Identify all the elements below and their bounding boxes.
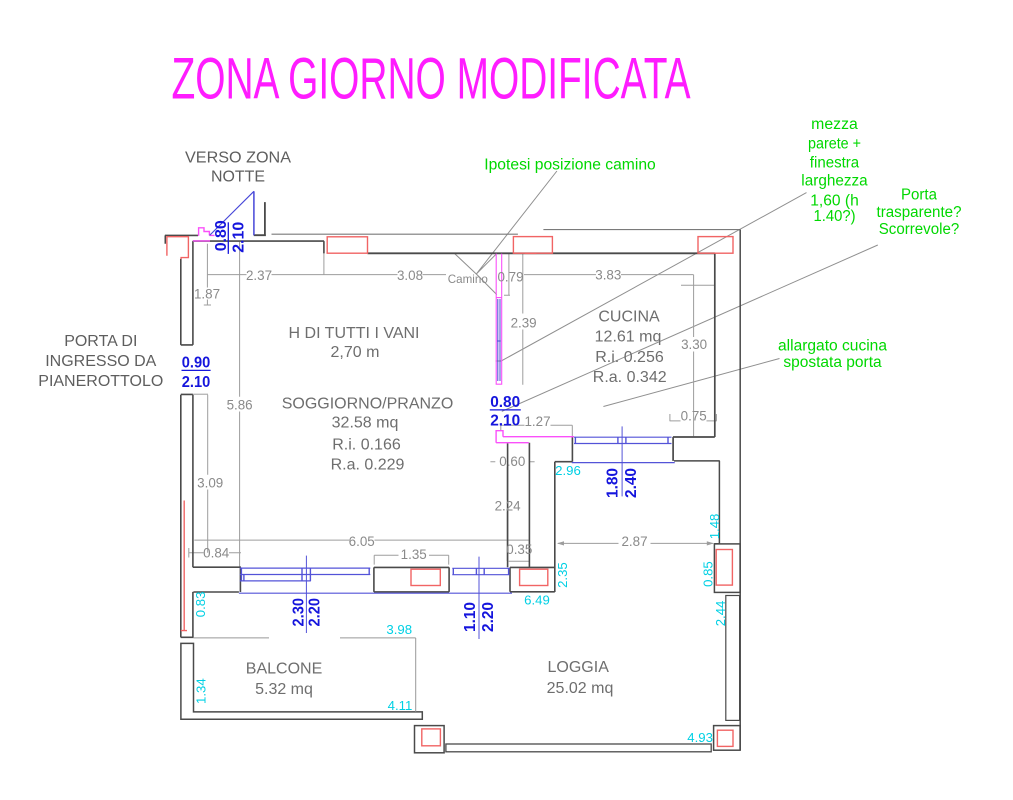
svg-text:2.96: 2.96 [555, 463, 581, 478]
svg-text:2.10: 2.10 [490, 413, 520, 430]
svg-text:12.61 mq: 12.61 mq [595, 329, 662, 346]
svg-text:trasparente?: trasparente? [877, 204, 962, 221]
svg-text:3.08: 3.08 [397, 268, 423, 283]
svg-text:allargato cucina: allargato cucina [778, 338, 887, 355]
svg-text:0.75: 0.75 [681, 409, 707, 424]
svg-text:mezza: mezza [811, 116, 858, 133]
svg-text:0.90: 0.90 [182, 355, 211, 372]
svg-text:2.40: 2.40 [623, 468, 640, 498]
svg-text:0.80: 0.80 [490, 394, 520, 411]
svg-text:3.30: 3.30 [681, 337, 707, 352]
svg-text:0.83: 0.83 [193, 592, 208, 618]
svg-text:5.86: 5.86 [227, 397, 253, 412]
svg-text:0.84: 0.84 [203, 546, 230, 561]
svg-text:larghezza: larghezza [801, 172, 868, 189]
svg-text:2.30: 2.30 [291, 598, 308, 627]
svg-text:6.05: 6.05 [349, 534, 375, 549]
svg-text:4.93: 4.93 [687, 730, 713, 745]
svg-text:BALCONE: BALCONE [246, 660, 322, 677]
svg-text:2.37: 2.37 [246, 268, 272, 283]
svg-text:R.a. 0.342: R.a. 0.342 [593, 369, 667, 386]
svg-text:Scorrevole?: Scorrevole? [879, 221, 960, 238]
svg-text:2.35: 2.35 [555, 562, 570, 588]
svg-text:1.35: 1.35 [401, 547, 427, 562]
svg-text:ZONA GIORNO MODIFICATA: ZONA GIORNO MODIFICATA [172, 47, 691, 112]
svg-text:2.20: 2.20 [480, 602, 497, 632]
svg-text:1.80: 1.80 [605, 468, 622, 498]
svg-text:R.a. 0.229: R.a. 0.229 [331, 457, 405, 474]
svg-text:2.44: 2.44 [713, 601, 728, 627]
svg-text:Porta: Porta [901, 187, 937, 204]
svg-text:PIANEROTTOLO: PIANEROTTOLO [38, 373, 163, 390]
svg-text:1.48: 1.48 [707, 514, 722, 540]
svg-text:25.02 mq: 25.02 mq [547, 680, 614, 697]
svg-text:Ipotesi posizione camino: Ipotesi posizione camino [484, 157, 656, 174]
svg-text:1,60 (h: 1,60 (h [810, 192, 859, 209]
svg-text:2.10: 2.10 [231, 222, 248, 253]
svg-text:R.i. 0.256: R.i. 0.256 [595, 349, 664, 366]
svg-text:5.32 mq: 5.32 mq [255, 681, 313, 698]
svg-text:R.i. 0.166: R.i. 0.166 [332, 436, 401, 453]
svg-text:0.79: 0.79 [497, 270, 523, 285]
svg-text:1.40?): 1.40?) [814, 208, 856, 225]
svg-text:H DI TUTTI I VANI: H DI TUTTI I VANI [289, 325, 420, 342]
svg-text:LOGGIA: LOGGIA [548, 659, 610, 676]
svg-text:1.27: 1.27 [524, 414, 550, 429]
svg-text:2.10: 2.10 [182, 374, 211, 391]
svg-text:INGRESSO DA: INGRESSO DA [45, 353, 156, 370]
svg-text:2.39: 2.39 [511, 315, 537, 330]
svg-text:1.34: 1.34 [194, 678, 209, 704]
svg-text:NOTTE: NOTTE [211, 168, 265, 185]
svg-text:SOGGIORNO/PRANZO: SOGGIORNO/PRANZO [282, 395, 454, 412]
svg-text:6.49: 6.49 [524, 593, 550, 608]
svg-text:2,70 m: 2,70 m [331, 344, 380, 361]
svg-text:0.80: 0.80 [213, 220, 230, 251]
svg-text:3.98: 3.98 [386, 622, 412, 637]
svg-text:32.58 mq: 32.58 mq [332, 415, 399, 432]
svg-text:PORTA DI: PORTA DI [64, 333, 137, 350]
svg-text:1.87: 1.87 [194, 287, 220, 302]
svg-text:2.24: 2.24 [495, 498, 522, 513]
svg-text:3.09: 3.09 [197, 476, 223, 491]
svg-text:spostata porta: spostata porta [783, 354, 882, 371]
svg-text:0.35: 0.35 [506, 542, 532, 557]
svg-text:parete +: parete + [808, 135, 861, 152]
svg-text:VERSO ZONA: VERSO ZONA [185, 149, 291, 166]
svg-text:Camino: Camino [448, 272, 488, 286]
svg-text:0.85: 0.85 [701, 561, 716, 587]
svg-text:3.83: 3.83 [595, 268, 621, 283]
svg-text:2.20: 2.20 [307, 598, 324, 627]
svg-text:finestra: finestra [810, 154, 860, 171]
svg-text:1.10: 1.10 [462, 602, 479, 632]
svg-text:2.87: 2.87 [621, 534, 647, 549]
svg-text:4.11: 4.11 [388, 698, 413, 713]
svg-text:0.60: 0.60 [499, 454, 525, 469]
svg-text:CUCINA: CUCINA [598, 308, 660, 325]
